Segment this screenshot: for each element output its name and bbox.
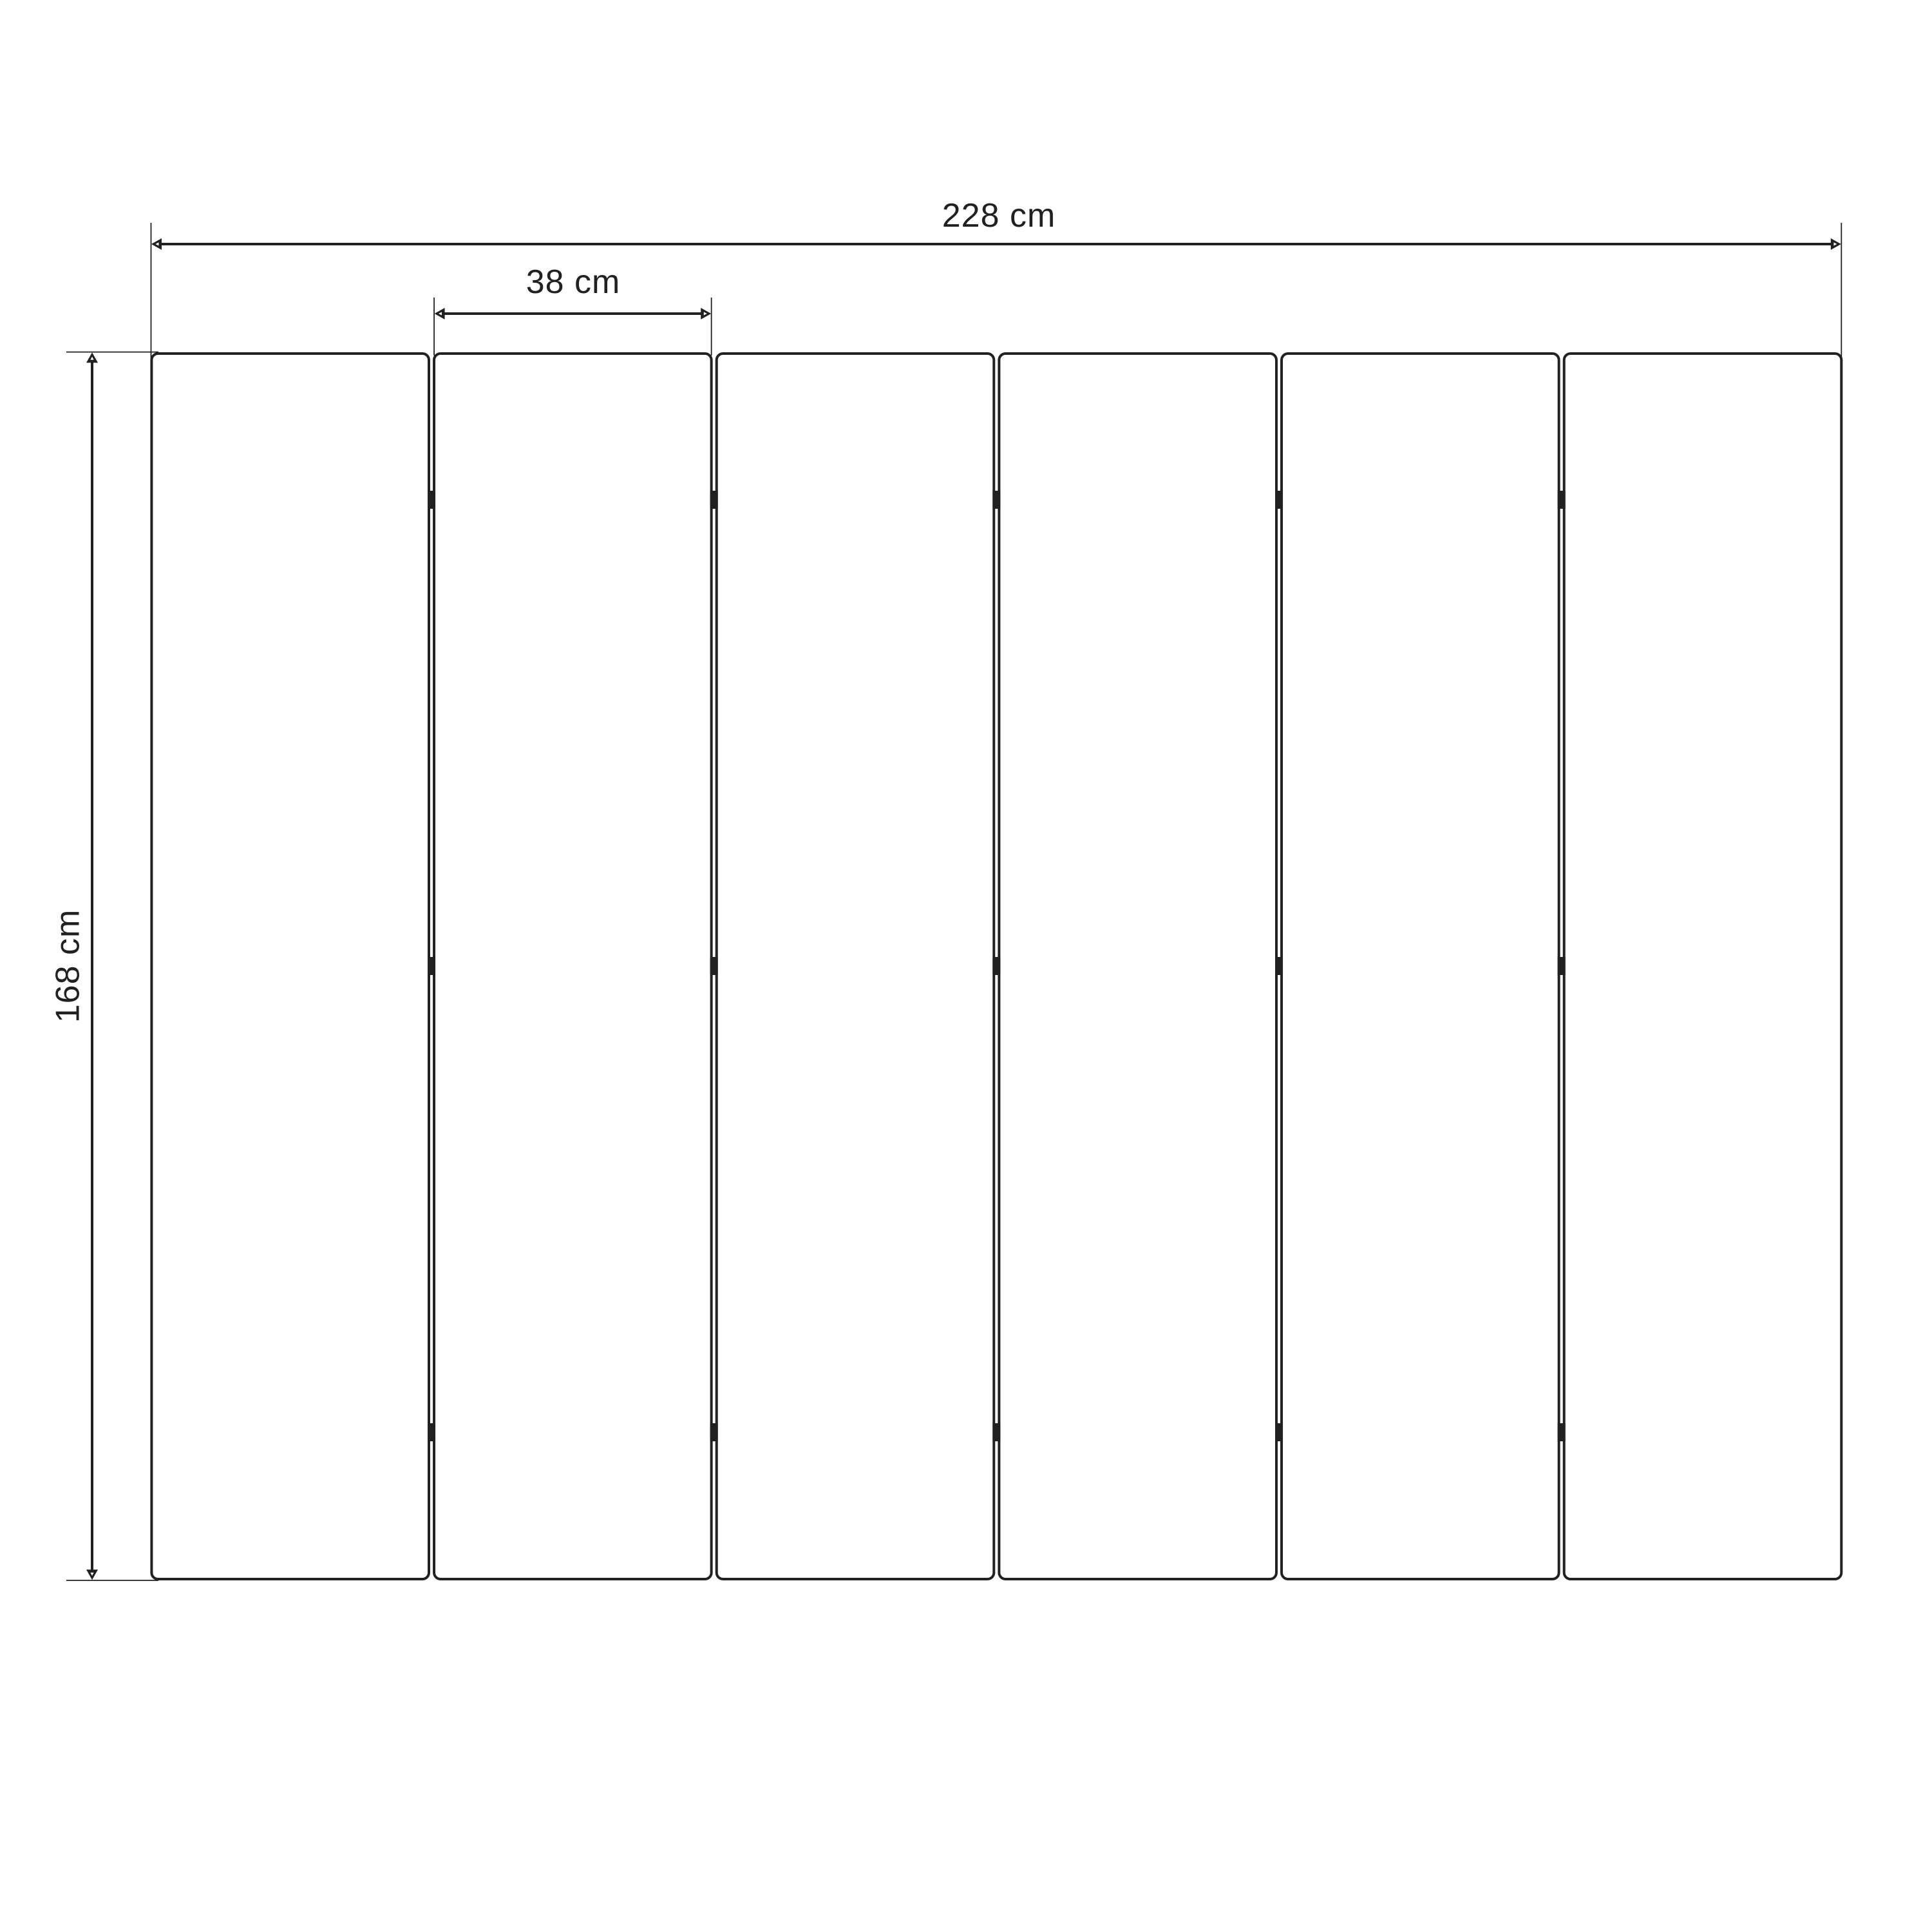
svg-text:228 cm: 228 cm <box>942 197 1056 234</box>
svg-text:38 cm: 38 cm <box>526 263 621 301</box>
svg-text:168 cm: 168 cm <box>50 909 87 1023</box>
